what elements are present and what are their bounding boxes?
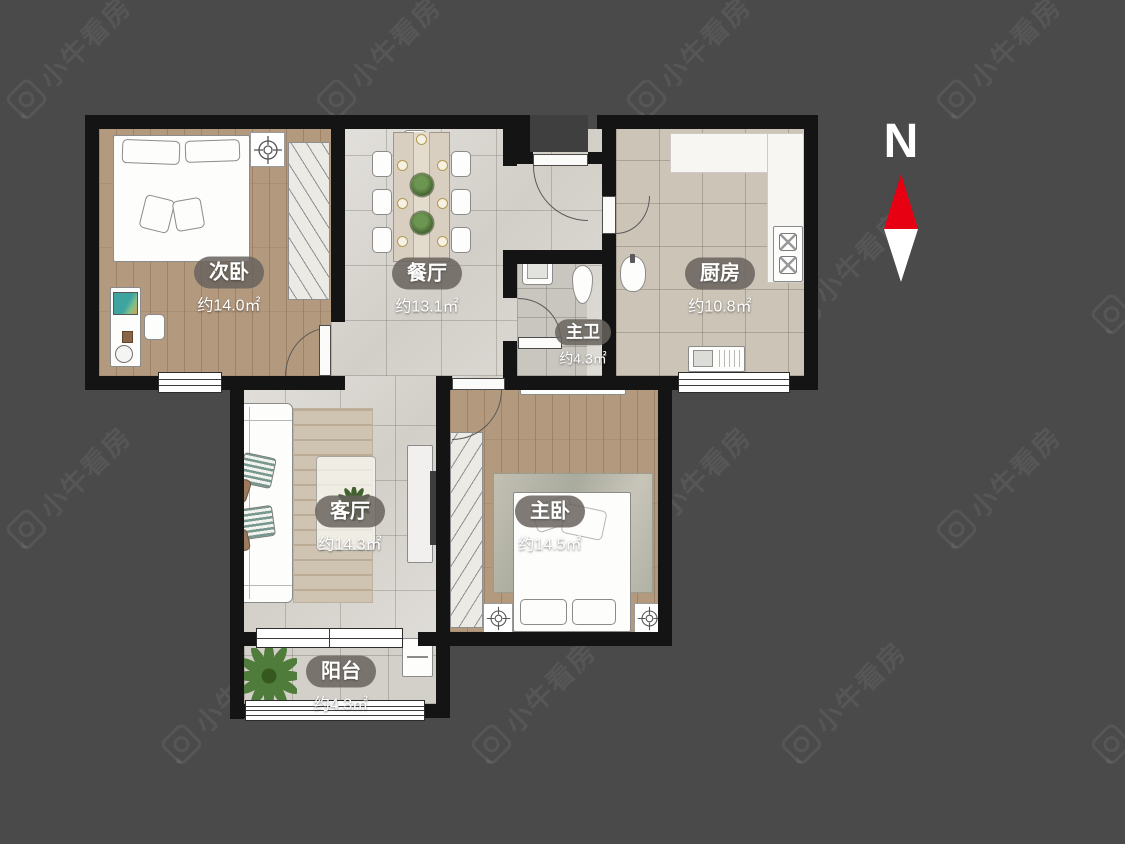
room-label-balcony: 阳台 约4.3㎡ xyxy=(306,656,376,715)
place-setting xyxy=(397,198,408,209)
bed-pillow xyxy=(572,599,616,625)
desk-lamp xyxy=(115,345,133,363)
wall xyxy=(436,376,452,390)
watermark-logo-icon xyxy=(469,721,514,766)
wall xyxy=(503,250,517,298)
watermark-logo-icon xyxy=(934,506,979,551)
watermark-logo-icon xyxy=(779,721,824,766)
watermark-logo-icon xyxy=(4,506,49,551)
watermark-text: 小牛看房 xyxy=(959,416,1069,526)
kitchen-door xyxy=(602,196,616,234)
watermark-text: 小牛看房 xyxy=(339,0,449,96)
entry-door xyxy=(533,154,588,166)
room-name-badge: 厨房 xyxy=(685,258,755,290)
room-label-dining-room: 餐厅 约13.1㎡ xyxy=(392,258,462,317)
place-setting xyxy=(397,236,408,247)
place-setting xyxy=(437,160,448,171)
room-area-text: 约14.3㎡ xyxy=(318,531,381,555)
room-area-text: 约13.1㎡ xyxy=(395,293,458,317)
wardrobe-master xyxy=(450,432,483,628)
table-plant xyxy=(411,212,433,234)
watermark-item: 小牛看房 xyxy=(1086,631,1125,769)
ceiling-light-icon xyxy=(250,132,285,167)
wall xyxy=(418,632,672,646)
watermark-text: 小牛看房 xyxy=(29,0,139,96)
floor-plan: 次卧 约14.0㎡ 餐厅 约13.1㎡ 主卫 约4.3㎡ 厨房 约10.8㎡ 客… xyxy=(85,115,818,718)
wall xyxy=(588,152,602,164)
wall xyxy=(597,115,818,129)
room-name-badge: 阳台 xyxy=(306,656,376,688)
bed-pillow xyxy=(185,139,241,163)
watermark-logo-icon xyxy=(1089,291,1125,336)
watermark-logo-icon xyxy=(4,76,49,121)
dining-chair xyxy=(451,189,471,215)
dining-chair xyxy=(451,151,471,177)
wall xyxy=(658,385,672,646)
table-plant xyxy=(411,174,433,196)
watermark-item: 小牛看房 xyxy=(1,0,139,124)
room-label-master-bathroom: 主卫 约4.3㎡ xyxy=(555,319,611,368)
room-name-badge: 餐厅 xyxy=(392,258,462,290)
watermark-text: 小牛看房 xyxy=(1114,201,1125,311)
wall xyxy=(503,250,606,264)
room-name-badge: 主卧 xyxy=(515,496,585,528)
wall xyxy=(85,115,99,390)
compass-needle-icon xyxy=(883,172,919,284)
bed-pillow xyxy=(122,139,181,165)
wall xyxy=(508,376,678,390)
wall xyxy=(790,376,818,390)
watermark-text: 小牛看房 xyxy=(1114,631,1125,741)
watermark-logo-icon xyxy=(934,76,979,121)
room-area-text: 约4.3㎡ xyxy=(559,349,606,369)
room-name-badge: 次卧 xyxy=(194,257,264,289)
balcony-sliding-door xyxy=(256,628,403,648)
kitchen-rack xyxy=(719,350,741,367)
watermark-item: 小牛看房 xyxy=(621,0,759,124)
kitchen-sink-basin xyxy=(693,350,713,367)
room-area-text: 约14.0㎡ xyxy=(197,292,260,316)
sofa-armrest xyxy=(238,420,292,421)
watermark-logo-icon xyxy=(1089,721,1125,766)
watermark-text: 小牛看房 xyxy=(649,0,759,96)
dining-chair xyxy=(372,151,392,177)
stove-burner xyxy=(779,233,797,251)
place-setting xyxy=(437,236,448,247)
room-label-kitchen: 厨房 约10.8㎡ xyxy=(685,258,755,317)
watermark-item: 小牛看房 xyxy=(311,0,449,124)
place-setting xyxy=(416,134,427,145)
entry-alcove xyxy=(530,115,588,152)
desk-item xyxy=(122,331,133,343)
desk-chair xyxy=(144,314,165,340)
dining-chair xyxy=(372,227,392,253)
bed-cushion xyxy=(172,197,206,233)
watermark-item: 小牛看房 xyxy=(931,0,1069,124)
wall xyxy=(602,115,616,196)
north-label: N xyxy=(868,118,934,166)
room-label-living-room: 客厅 约14.3㎡ xyxy=(315,496,385,555)
sofa-armrest xyxy=(238,585,292,586)
wall xyxy=(804,115,818,390)
room-area-text: 约14.5㎡ xyxy=(518,531,581,555)
stove-burner xyxy=(779,256,797,274)
niche-faucet xyxy=(630,254,635,263)
wall xyxy=(424,704,450,718)
room-area-text: 约4.3㎡ xyxy=(314,691,368,715)
room-label-master-bedroom: 主卧 约14.5㎡ xyxy=(515,496,585,555)
sofa xyxy=(237,403,293,603)
place-setting xyxy=(437,198,448,209)
bed-pillow xyxy=(520,599,567,625)
dining-chair xyxy=(451,227,471,253)
watermark-text: 小牛看房 xyxy=(804,631,914,741)
window-secondary-bedroom xyxy=(158,372,222,393)
wall xyxy=(517,115,530,164)
wall xyxy=(436,390,450,632)
dining-chair xyxy=(372,189,392,215)
compass-north: N xyxy=(868,118,934,289)
bedside-light-icon xyxy=(483,603,513,633)
room-name-badge: 主卫 xyxy=(555,319,611,345)
wall xyxy=(230,390,244,719)
wall xyxy=(85,115,530,129)
table-runner xyxy=(413,132,430,262)
place-setting xyxy=(397,160,408,171)
window-kitchen xyxy=(678,372,790,393)
watermark-item: 小牛看房 xyxy=(931,416,1069,554)
secondary-bedroom-door xyxy=(319,325,331,376)
balcony-cabinet-handle xyxy=(407,656,428,658)
bathroom-sink-basin xyxy=(527,262,548,279)
floorplan-page: 小牛看房小牛看房小牛看房小牛看房小牛看房小牛看房小牛看房小牛看房小牛看房小牛看房… xyxy=(0,0,1125,844)
wardrobe-secondary xyxy=(288,142,330,300)
room-area-text: 约10.8㎡ xyxy=(688,293,751,317)
balcony-plant xyxy=(241,648,297,704)
room-name-badge: 客厅 xyxy=(315,496,385,528)
wall xyxy=(331,129,345,322)
watermark-logo-icon xyxy=(159,721,204,766)
watermark-item: 小牛看房 xyxy=(1086,201,1125,339)
watermark-text: 小牛看房 xyxy=(959,0,1069,96)
master-bedroom-door xyxy=(452,378,505,390)
sofa-back-line xyxy=(249,407,250,599)
desk-screen xyxy=(113,292,138,315)
room-label-secondary-bedroom: 次卧 约14.0㎡ xyxy=(194,257,264,316)
